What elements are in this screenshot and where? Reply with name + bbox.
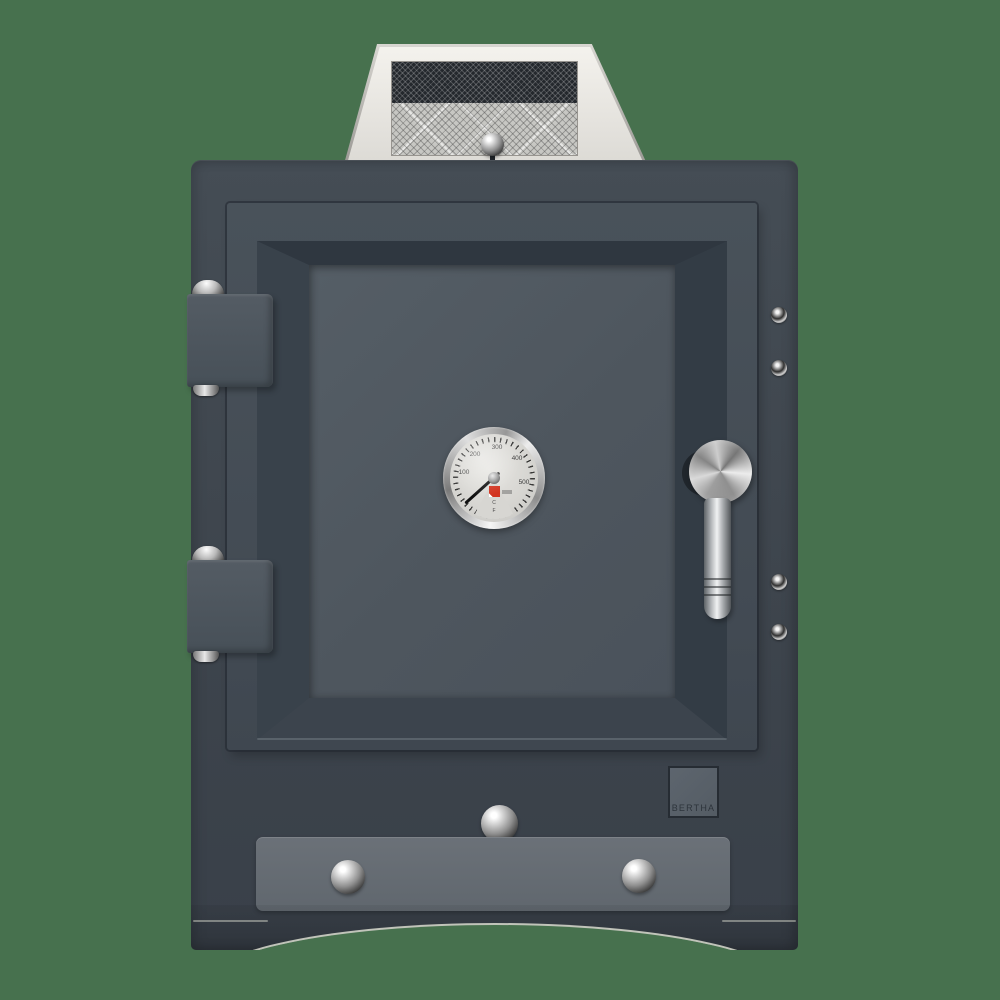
product-photo-charcoal-oven: 100 200 300 400 500 C F BERTHA	[0, 0, 1000, 1000]
screw-bottom-1	[771, 574, 787, 590]
screw-bottom-2	[771, 624, 787, 640]
temperature-gauge: 100 200 300 400 500 C F	[443, 427, 545, 529]
gauge-glass-highlight	[450, 434, 538, 522]
handle-groove	[704, 594, 731, 596]
door-bevel-highlight	[257, 738, 727, 740]
door-hinge-bottom	[187, 560, 273, 653]
screw-top-1	[771, 307, 787, 323]
base-edge-highlight-right	[722, 920, 796, 922]
brand-badge-label: BERTHA	[672, 803, 716, 813]
vent-mesh-upper	[392, 62, 577, 103]
handle-groove	[704, 586, 731, 588]
base-edge-highlight-left	[193, 920, 268, 922]
handle-groove	[704, 578, 731, 580]
door-hinge-top	[187, 294, 273, 387]
base-plinth	[191, 905, 798, 950]
hinge-bottom-pin	[193, 651, 219, 662]
hinge-top-pin	[193, 385, 219, 396]
drawer-knob-right	[622, 859, 656, 893]
ash-drawer	[256, 837, 730, 911]
door-handle-lever	[704, 498, 731, 619]
chimney-vent-knob	[481, 133, 504, 156]
screw-top-2	[771, 360, 787, 376]
brand-badge: BERTHA	[668, 766, 719, 818]
door-handle-disc	[689, 440, 752, 503]
drawer-knob-left	[331, 860, 365, 894]
